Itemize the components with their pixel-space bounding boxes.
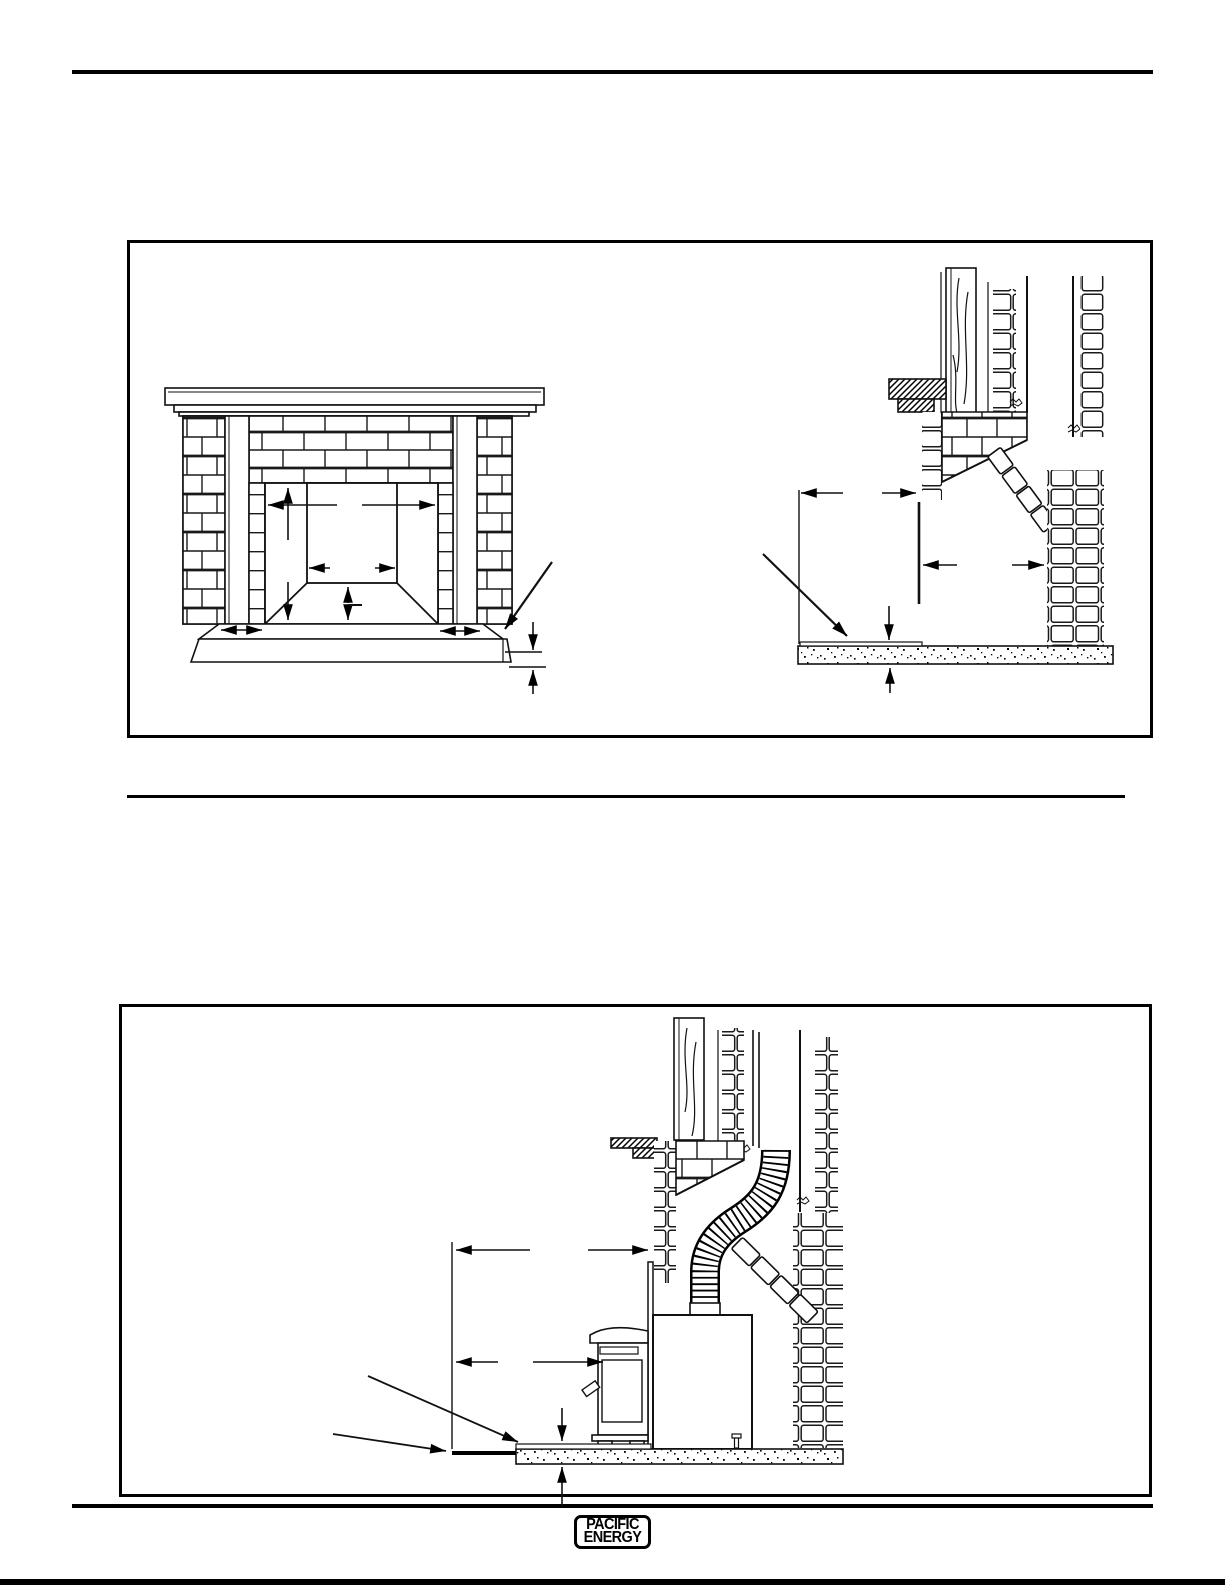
mantel-section-hatched (611, 1138, 657, 1158)
figure-fireplace-section-view (763, 268, 1113, 693)
flue-collar (690, 1303, 720, 1315)
stove-front (598, 1343, 648, 1435)
chimney-face-bricks (993, 289, 1016, 412)
floor-ember-strip (452, 1451, 516, 1455)
diagram-layer (0, 0, 1225, 1585)
outer-chimney-bricks-upper (1080, 276, 1104, 437)
right-pilaster (453, 416, 477, 624)
mantel-section-hatched (889, 379, 946, 412)
smoke-chamber-diagonal-bricks (988, 447, 1057, 532)
logo-line-2: ENERGY (584, 1532, 642, 1546)
back-wall-bricks (1047, 470, 1104, 646)
stove-insert (582, 1262, 752, 1449)
stove-base-lip (592, 1435, 648, 1441)
floor-strip-callout-arrow (333, 1434, 446, 1451)
chimney-breast-bricks (654, 1141, 676, 1283)
outer-chimney-bricks-upper (815, 1037, 838, 1213)
hearth-protection-plate (516, 1444, 651, 1449)
figure-stove-insert-section-view (333, 1018, 843, 1506)
chimney-breast-bricks (922, 412, 942, 500)
hearth-plate-callout-arrow (368, 1376, 518, 1442)
figure-fireplace-front-view (165, 388, 552, 694)
right-brick-column (477, 416, 512, 624)
stove-top-plate (590, 1328, 648, 1343)
chimney-face-bricks (722, 1028, 744, 1141)
left-leg-bricks (249, 483, 265, 624)
wood-stud (674, 1018, 704, 1140)
hearth-slab-section (516, 1449, 843, 1464)
header-brick-course (249, 416, 453, 483)
stove-body (653, 1315, 752, 1449)
mantel-shelf (165, 388, 544, 416)
door-handle (582, 1381, 600, 1397)
right-leg-bricks (438, 483, 453, 624)
left-pilaster (225, 416, 249, 624)
back-wall-bricks (793, 1213, 843, 1448)
air-control (600, 1347, 638, 1354)
hearth-plate-callout-arrow (763, 554, 847, 636)
left-brick-column (183, 416, 225, 624)
manual-page: PACIFIC ENERGY (0, 0, 1225, 1585)
pacific-energy-logo: PACIFIC ENERGY (574, 1515, 651, 1549)
hearth-protection-plate (800, 642, 922, 646)
breast-bond-bricks (676, 1141, 744, 1195)
hearth-slab-section (798, 646, 1113, 664)
